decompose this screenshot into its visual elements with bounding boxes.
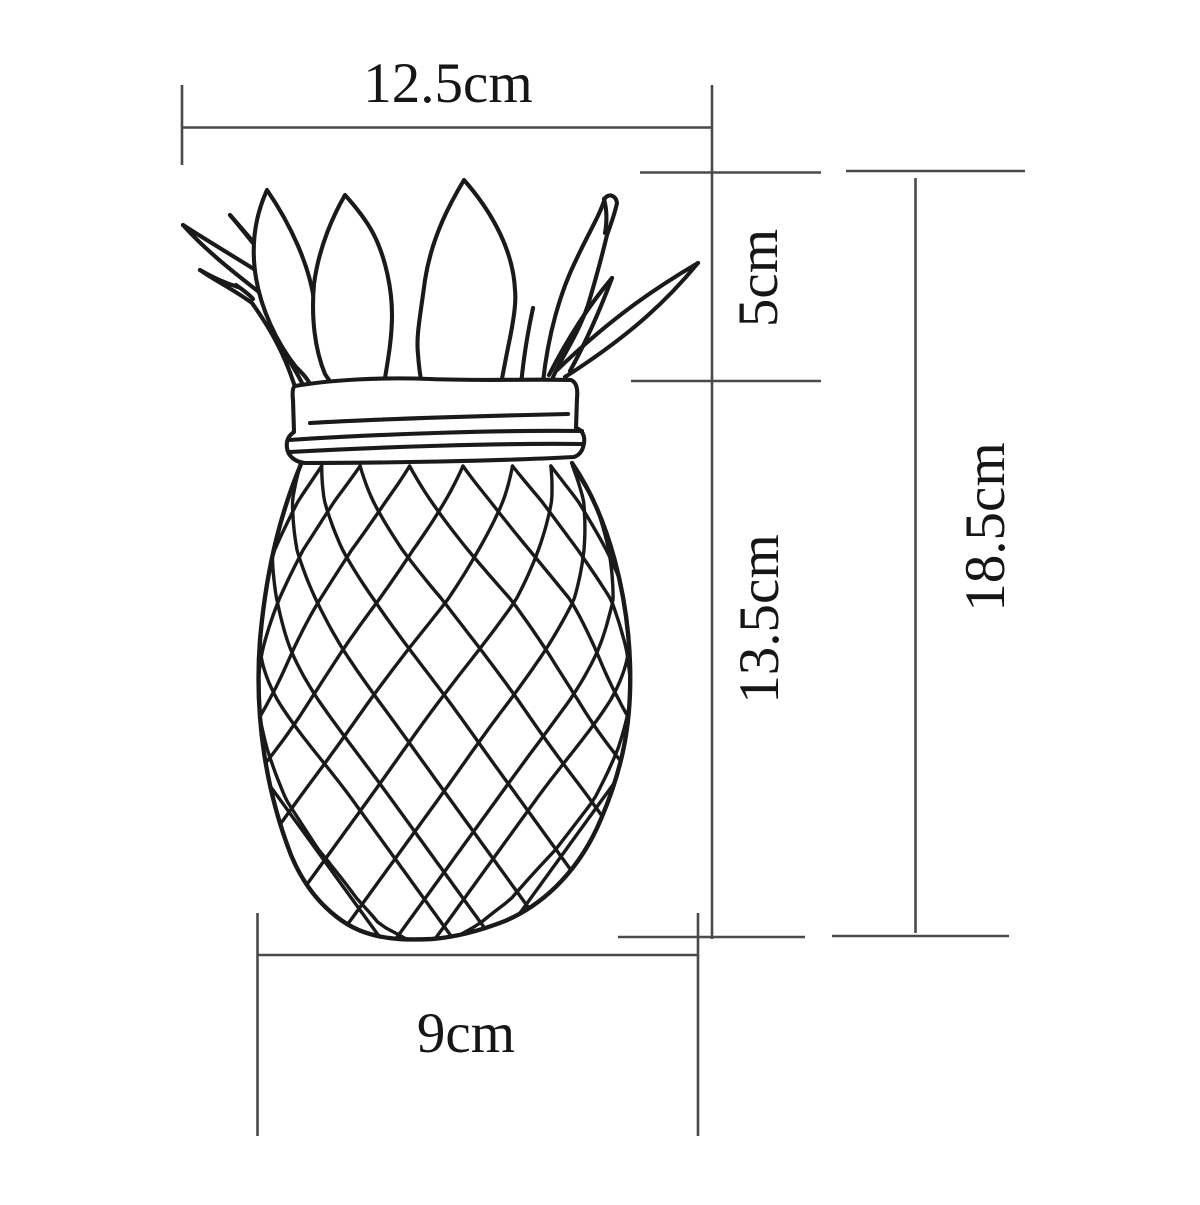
svg-text:18.5cm: 18.5cm [954, 442, 1017, 611]
svg-text:12.5cm: 12.5cm [363, 52, 532, 115]
svg-text:9cm: 9cm [417, 1002, 515, 1065]
svg-text:13.5cm: 13.5cm [728, 534, 791, 703]
svg-text:5cm: 5cm [727, 229, 790, 327]
